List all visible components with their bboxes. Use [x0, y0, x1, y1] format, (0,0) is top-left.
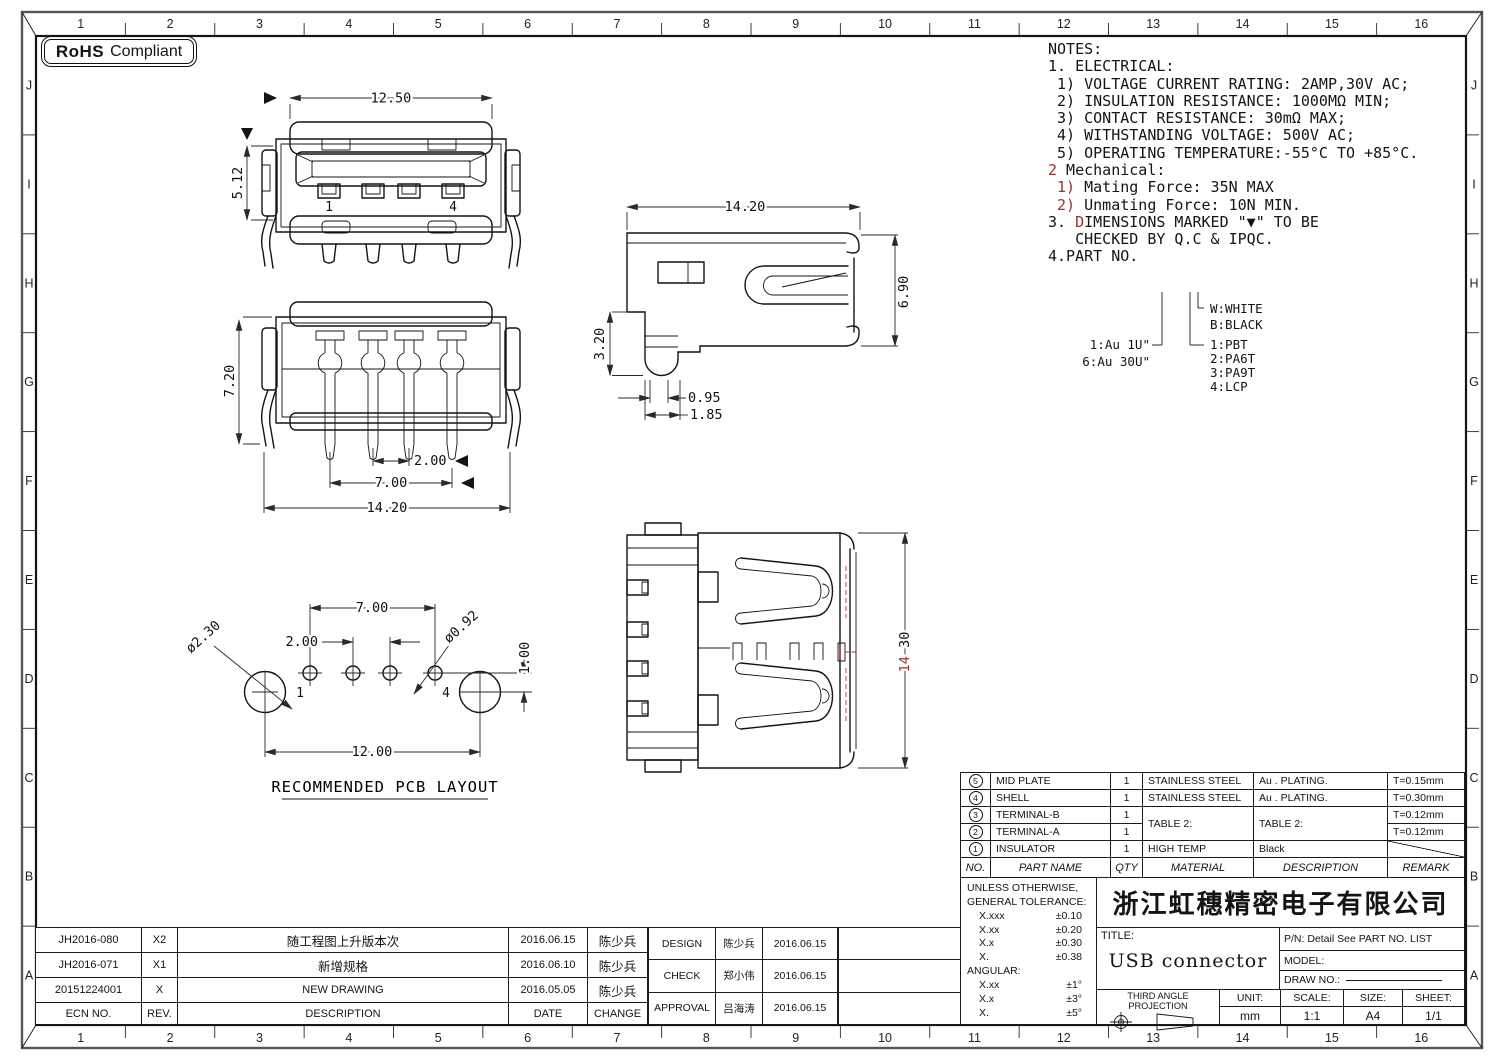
svg-text:3. DIMENSIONS MARKED "▼" TO BE: 3. DIMENSIONS MARKED "▼" TO BE: [1048, 213, 1319, 231]
ruler-row-label: D: [1469, 672, 1478, 686]
part-no: 5: [961, 773, 990, 789]
note-line: Mechanical:: [1057, 161, 1165, 179]
note-line: 4) WITHSTANDING VOLTAGE: 500V AC;: [1048, 126, 1355, 144]
ruler-col-label: 8: [703, 1031, 710, 1045]
ruler-col-label: 12: [1057, 1031, 1071, 1045]
tol-value: ±1°: [1066, 979, 1082, 993]
view-top: 14 30: [627, 523, 913, 772]
top-view-pins: [627, 580, 648, 716]
part-no: 1: [961, 841, 990, 857]
ruler-col-label: 7: [613, 17, 620, 31]
rev-change: 陈少兵: [588, 928, 647, 952]
svg-text:3) CONTACT RESISTANCE: 30mΩ MA: 3) CONTACT RESISTANCE: 30mΩ MAX;: [1048, 109, 1346, 127]
title-label: TITLE:: [1101, 930, 1275, 942]
ruler-col-label: 8: [703, 17, 710, 31]
part-number-note: P/N: Detail See PART NO. LIST: [1280, 928, 1464, 950]
tol-value: ±0.38: [1056, 951, 1082, 965]
ruler-col-label: 3: [256, 17, 263, 31]
approval-role: CHECK: [649, 960, 715, 991]
part-description: Black: [1254, 841, 1387, 857]
dim-top-height-black: 30: [897, 632, 913, 656]
ruler-col-label: 5: [435, 17, 442, 31]
latch-spring: [745, 266, 848, 304]
tol-label: X.: [979, 951, 989, 965]
note-line: 3) CONTACT RESISTANCE: 30mΩ MAX;: [1048, 109, 1346, 127]
part-remark-blank: [1388, 841, 1464, 857]
part-qty: 1: [1111, 773, 1142, 789]
ruler-col-label: 2: [167, 1031, 174, 1045]
note-line: 4.PART NO.: [1048, 247, 1138, 265]
svg-text:2 Mechanical:: 2 Mechanical:: [1048, 161, 1165, 179]
draw-no-row: DRAW NO.:: [1280, 971, 1464, 989]
ruler-col-label: 15: [1325, 1031, 1339, 1045]
title-box: TITLE: USB connector: [1096, 927, 1280, 990]
ruler-col-label: 16: [1414, 17, 1428, 31]
ruler-row-label: B: [1470, 870, 1478, 884]
part-remark: T=0.12mm: [1388, 824, 1464, 840]
ruler-col-label: 15: [1325, 17, 1339, 31]
ruler-col-label: 10: [878, 17, 892, 31]
tol-label: X.xxx: [979, 910, 1005, 924]
tol-value: ±3°: [1066, 993, 1082, 1007]
rev-ecn: 20151224001: [36, 978, 141, 1002]
dim-rear-height: 7.20: [222, 365, 238, 398]
rear-terminals: [316, 331, 466, 460]
approval-name: 吕海涛: [716, 993, 762, 1024]
size-value: A4: [1344, 1007, 1402, 1024]
rev-header-change: CHANGE: [588, 1003, 647, 1024]
svg-text:4) WITHSTANDING VOLTAGE: 500V: 4) WITHSTANDING VOLTAGE: 500V AC;: [1048, 126, 1355, 144]
part-no: 4: [961, 790, 990, 806]
inspection-triangle-icon: [264, 92, 277, 104]
scale-value: 1:1: [1281, 1007, 1343, 1024]
rev-change: 陈少兵: [588, 978, 647, 1002]
part-name: MID PLATE: [991, 773, 1110, 789]
part-remark: T=0.30mm: [1388, 790, 1464, 806]
svg-text:1) Mating Force: 35N MAX: 1) Mating Force: 35N MAX: [1048, 178, 1274, 196]
ruler-col-label: 13: [1146, 17, 1160, 31]
part-description: TABLE 2:: [1254, 807, 1387, 840]
ruler-col-label: 4: [345, 17, 352, 31]
part-no: 3: [961, 807, 990, 823]
rev-header-ecn: ECN NO.: [36, 1003, 141, 1024]
dim-side-tip: 0.95: [688, 390, 721, 406]
rev-change: 陈少兵: [588, 953, 647, 977]
ruler-row-label: C: [1469, 771, 1478, 785]
part-remark: T=0.12mm: [1388, 807, 1464, 823]
unit-scale-size-sheet: UNIT: SCALE: SIZE: SHEET: mm 1:1 A4 1/1: [1219, 989, 1465, 1025]
ruler-col-label: 12: [1057, 17, 1071, 31]
dim-top-height-red: 14: [897, 656, 913, 672]
drawing-title: USB connector: [1101, 950, 1275, 972]
col-header-description: DESCRIPTION: [1254, 858, 1387, 877]
col-header-qty: QTY: [1111, 858, 1142, 877]
rev-rev: X2: [142, 928, 177, 952]
tol-label: X.x: [979, 993, 994, 1007]
scale-label: SCALE:: [1281, 990, 1343, 1006]
ruler-right: JIHGFEDCBA: [1467, 78, 1479, 982]
col-header-remark: REMARK: [1388, 858, 1464, 877]
part-qty: 1: [1111, 841, 1142, 857]
svg-text:4.PART NO.: 4.PART NO.: [1048, 247, 1138, 265]
part-qty: 1: [1111, 807, 1142, 823]
tol-label: X.: [979, 1007, 989, 1021]
parts-table: 5 MID PLATE 1 STAINLESS STEEL Au . PLATI…: [960, 772, 1465, 878]
third-angle-projection-icon: [1099, 1011, 1217, 1033]
rev-date: 2016.05.05: [509, 978, 587, 1002]
ruler-col-label: 16: [1414, 1031, 1428, 1045]
view-side: 14.20 6.90 3.20 0.95 1.85: [592, 199, 912, 423]
ruler-col-label: 1: [77, 1031, 84, 1045]
dim-pcb-pitch: 2.00: [285, 634, 318, 650]
rev-description: 新增规格: [178, 953, 508, 977]
tol-label: X.xx: [979, 979, 999, 993]
ruler-col-label: 9: [792, 1031, 799, 1045]
rohs-text: Compliant: [110, 43, 182, 61]
approval-role: APPROVAL: [649, 993, 715, 1024]
ruler-col-label: 6: [524, 17, 531, 31]
dim-pcb-small-hole: ø0.92: [441, 607, 482, 646]
material-option: 2:PA6T: [1210, 351, 1256, 366]
mid-contacts: [733, 643, 823, 660]
part-remark: T=0.15mm: [1388, 773, 1464, 789]
note-line: 2) INSULATION RESISTANCE: 1000MΩ MIN;: [1048, 92, 1391, 110]
dim-pcb-span: 7.00: [356, 600, 389, 616]
svg-text:NOTES:: NOTES:: [1048, 40, 1102, 58]
notes: NOTES: 1. ELECTRICAL: 1) VOLTAGE CURRENT…: [1048, 40, 1418, 265]
ruler-row-label: B: [25, 870, 33, 884]
note-line: NOTES:: [1048, 40, 1102, 58]
dim-side-width: 14.20: [725, 199, 766, 215]
tolerance-heading: GENERAL TOLERANCE:: [967, 896, 1090, 910]
approval-name: 陈少兵: [716, 928, 762, 959]
part-name: TERMINAL-A: [991, 824, 1110, 840]
col-header-no: NO.: [961, 858, 990, 877]
ruler-row-label: C: [24, 771, 33, 785]
ruler-row-label: F: [1470, 474, 1478, 488]
color-option: B:BLACK: [1210, 317, 1263, 332]
pcb-layout-caption: RECOMMENDED PCB LAYOUT: [271, 778, 498, 796]
col-header-material: MATERIAL: [1143, 858, 1253, 877]
ruler-col-label: 14: [1236, 1031, 1250, 1045]
rev-header-rev: REV.: [142, 1003, 177, 1024]
ruler-row-label: G: [1469, 375, 1479, 389]
ruler-col-label: 9: [792, 17, 799, 31]
front-pin1-label: 1: [325, 200, 333, 215]
dim-side-leg-width: 1.85: [690, 407, 723, 423]
ruler-col-label: 10: [878, 1031, 892, 1045]
svg-text:1) VOLTAGE CURRENT RATING: 2AM: 1) VOLTAGE CURRENT RATING: 2AMP,30V AC;: [1048, 75, 1409, 93]
dim-rear-width: 14.20: [367, 500, 408, 516]
material-option: 1:PBT: [1210, 337, 1248, 352]
plating-option: 6:Au 30U": [1082, 354, 1150, 369]
ruler-col-label: 7: [613, 1031, 620, 1045]
rev-rev: X: [142, 978, 177, 1002]
ruler-row-label: J: [26, 78, 32, 92]
ruler-bottom: 12345678910111213141516: [77, 1026, 1428, 1045]
rev-ecn: JH2016-080: [36, 928, 141, 952]
svg-text:1. ELECTRICAL:: 1. ELECTRICAL:: [1048, 57, 1174, 75]
tolerance-heading: UNLESS OTHERWISE,: [967, 882, 1090, 896]
angular-heading: ANGULAR:: [967, 965, 1090, 979]
part-material: STAINLESS STEEL: [1143, 790, 1253, 806]
tol-label: X.x: [979, 937, 994, 951]
tol-value: ±5°: [1066, 1007, 1082, 1021]
pcb-pin4-label: 4: [442, 686, 450, 701]
dim-side-leg: 3.20: [592, 328, 608, 361]
tolerance-box: UNLESS OTHERWISE, GENERAL TOLERANCE: X.x…: [960, 877, 1097, 1025]
inspection-triangle-icon: [455, 455, 468, 467]
projection-box: THIRD ANGLE PROJECTION: [1096, 989, 1220, 1025]
approval-table: DESIGN 陈少兵 2016.06.15 CHECK 郑小伟 2016.06.…: [648, 927, 838, 1025]
view-front: 12.50 5.12 1 4: [230, 91, 520, 269]
approval-date: 2016.06.15: [763, 928, 837, 959]
rohs-label: RoHS: [56, 42, 104, 62]
dim-side-height: 6.90: [896, 276, 912, 309]
sheet-label: SHEET:: [1403, 990, 1464, 1006]
rev-date: 2016.06.15: [509, 928, 587, 952]
approval-role: DESIGN: [649, 928, 715, 959]
note-line: IMENSIONS MARKED "▼" TO BE: [1084, 213, 1319, 231]
draw-no-line: [1346, 980, 1442, 981]
tol-value: ±0.20: [1056, 924, 1082, 938]
svg-text:2) INSULATION RESISTANCE: 1000: 2) INSULATION RESISTANCE: 1000MΩ MIN;: [1048, 92, 1391, 110]
spacer-cell: [839, 928, 960, 959]
ruler-row-label: F: [25, 474, 33, 488]
ruler-col-label: 2: [167, 17, 174, 31]
ruler-col-label: 11: [968, 17, 981, 31]
note-line: 5) OPERATING TEMPERATURE:-55°C TO +85°C.: [1048, 144, 1418, 162]
ruler-col-label: 14: [1236, 17, 1250, 31]
part-material: STAINLESS STEEL: [1143, 773, 1253, 789]
ruler-row-label: H: [24, 276, 33, 290]
ruler-col-label: 3: [256, 1031, 263, 1045]
part-name: SHELL: [991, 790, 1110, 806]
tol-value: ±0.10: [1056, 910, 1082, 924]
note-line: 1. ELECTRICAL:: [1048, 57, 1174, 75]
view-pcb-layout: ø2.30 ø0.92 7.00 2.00 1.00 12.00 1 4 REC…: [183, 600, 533, 799]
color-option: W:WHITE: [1210, 301, 1263, 316]
spacer-cell: [839, 960, 960, 991]
rev-header-description: DESCRIPTION: [178, 1003, 508, 1024]
dim-rear-span: 7.00: [375, 475, 408, 491]
rohs-badge: RoHSCompliant: [41, 36, 197, 67]
part-material: HIGH TEMP: [1143, 841, 1253, 857]
part-qty: 1: [1111, 790, 1142, 806]
dim-pcb-offset: 1.00: [517, 642, 533, 675]
ruler-row-label: A: [1470, 969, 1479, 983]
pn-model-drawno: P/N: Detail See PART NO. LIST MODEL: DRA…: [1279, 927, 1465, 990]
dim-top-height: 14 30: [897, 632, 913, 673]
note-line: Mating Force: 35N MAX: [1075, 178, 1274, 196]
projection-label: THIRD ANGLE PROJECTION: [1097, 991, 1219, 1011]
ruler-row-label: E: [25, 573, 33, 587]
pcb-pin1-label: 1: [296, 686, 304, 701]
company-name: 浙江虹穗精密电子有限公司: [1096, 877, 1465, 928]
unit-value: mm: [1220, 1007, 1280, 1024]
draw-no-label: DRAW NO.:: [1284, 974, 1340, 986]
rev-description: 随工程图上升版本次: [178, 928, 508, 952]
note-line: Unmating Force: 10N MIN.: [1075, 196, 1301, 214]
dim-pcb-width: 12.00: [352, 744, 393, 760]
dim-front-height: 5.12: [230, 167, 246, 200]
ruler-row-label: H: [1469, 276, 1478, 290]
material-option: 4:LCP: [1210, 379, 1248, 394]
dim-front-width: 12.50: [371, 91, 412, 107]
model-label: MODEL:: [1280, 951, 1464, 970]
ruler-row-label: D: [24, 672, 33, 686]
part-qty: 1: [1111, 824, 1142, 840]
ruler-row-label: A: [25, 969, 34, 983]
col-header-part-name: PART NAME: [991, 858, 1110, 877]
view-rear: 7.20 2.00 7.00 14.20: [222, 302, 520, 516]
svg-text:2) Unmating Force: 10N MIN.: 2) Unmating Force: 10N MIN.: [1048, 196, 1301, 214]
part-material: TABLE 2:: [1143, 807, 1253, 840]
size-label: SIZE:: [1344, 990, 1402, 1006]
dim-pcb-big-hole: ø2.30: [183, 617, 224, 656]
approval-spacer: [838, 927, 961, 1025]
ruler-row-label: G: [24, 375, 34, 389]
note-line: 1) VOLTAGE CURRENT RATING: 2AMP,30V AC;: [1048, 75, 1409, 93]
shell-springs: [736, 558, 833, 729]
part-name: TERMINAL-B: [991, 807, 1110, 823]
revision-table: JH2016-080 X2 随工程图上升版本次 2016.06.15 陈少兵 J…: [35, 927, 648, 1025]
sheet-value: 1/1: [1403, 1007, 1464, 1024]
svg-text:5) OPERATING TEMPERATURE:-55°C: 5) OPERATING TEMPERATURE:-55°C TO +85°C.: [1048, 144, 1418, 162]
part-no: 2: [961, 824, 990, 840]
ruler-left: JIHGFEDCBA: [23, 78, 35, 982]
approval-date: 2016.06.15: [763, 960, 837, 991]
approval-date: 2016.06.15: [763, 993, 837, 1024]
ruler-col-label: 4: [345, 1031, 352, 1045]
spacer-cell: [839, 993, 960, 1024]
rev-description: NEW DRAWING: [178, 978, 508, 1002]
pcb-small-holes: [298, 604, 447, 686]
drawing-sheet: 12345678910111213141516 1234567891011121…: [0, 0, 1502, 1059]
ruler-col-label: 5: [435, 1031, 442, 1045]
ruler-col-label: 6: [524, 1031, 531, 1045]
dim-rear-pitch: 2.00: [414, 453, 447, 469]
part-description: Au . PLATING.: [1254, 773, 1387, 789]
inspection-triangle-icon: [461, 477, 474, 489]
ruler-row-label: I: [27, 177, 30, 191]
part-number-tree: 1:Au 1U" 6:Au 30U" W:WHITE B:BLACK 1:PBT…: [1082, 292, 1263, 394]
ruler-top: 12345678910111213141516: [77, 17, 1428, 35]
ruler-row-label: J: [1471, 78, 1477, 92]
ruler-row-label: E: [1470, 573, 1478, 587]
rev-rev: X1: [142, 953, 177, 977]
rev-ecn: JH2016-071: [36, 953, 141, 977]
ruler-row-label: I: [1472, 177, 1475, 191]
note-line: CHECKED BY Q.C & IPQC.: [1048, 230, 1274, 248]
ruler-col-label: 11: [968, 1031, 981, 1045]
part-name: INSULATOR: [991, 841, 1110, 857]
material-option: 3:PA9T: [1210, 365, 1256, 380]
unit-label: UNIT:: [1220, 990, 1280, 1006]
tol-value: ±0.30: [1056, 937, 1082, 951]
ruler-col-label: 1: [77, 17, 84, 31]
rev-date: 2016.06.10: [509, 953, 587, 977]
svg-text:CHECKED BY Q.C & IPQC.: CHECKED BY Q.C & IPQC.: [1048, 230, 1274, 248]
tol-label: X.xx: [979, 924, 999, 938]
part-description: Au . PLATING.: [1254, 790, 1387, 806]
approval-name: 郑小伟: [716, 960, 762, 991]
rev-header-date: DATE: [509, 1003, 587, 1024]
front-pin4-label: 4: [449, 200, 457, 215]
inspection-triangle-icon: [241, 128, 253, 140]
plating-option: 1:Au 1U": [1090, 337, 1150, 352]
